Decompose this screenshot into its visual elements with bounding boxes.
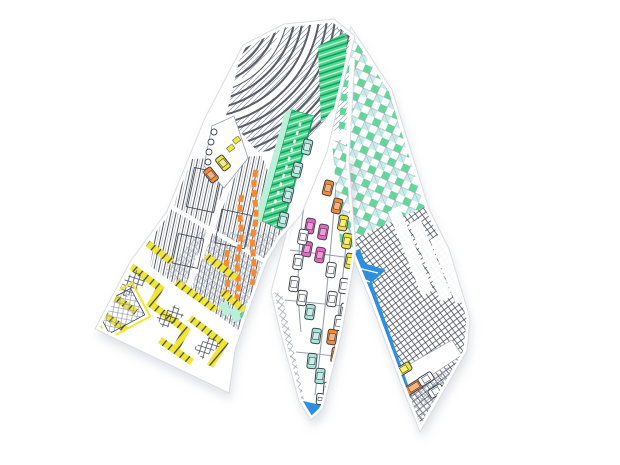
car-teal	[315, 368, 326, 384]
car-white	[327, 291, 338, 307]
car-yellow	[341, 233, 352, 249]
car-white	[326, 262, 337, 278]
car-white	[293, 254, 304, 270]
car-pink	[314, 247, 325, 263]
twilly-scarf-illustration	[0, 0, 620, 465]
car-orange	[327, 329, 338, 345]
car-teal	[311, 328, 322, 344]
car-teal	[305, 304, 316, 320]
car-white	[297, 290, 308, 306]
car-white	[289, 276, 300, 292]
car-teal	[307, 353, 318, 369]
car-yellow	[337, 215, 348, 231]
product-photo	[0, 0, 620, 465]
car-white	[297, 229, 308, 245]
car-pink	[317, 224, 328, 240]
